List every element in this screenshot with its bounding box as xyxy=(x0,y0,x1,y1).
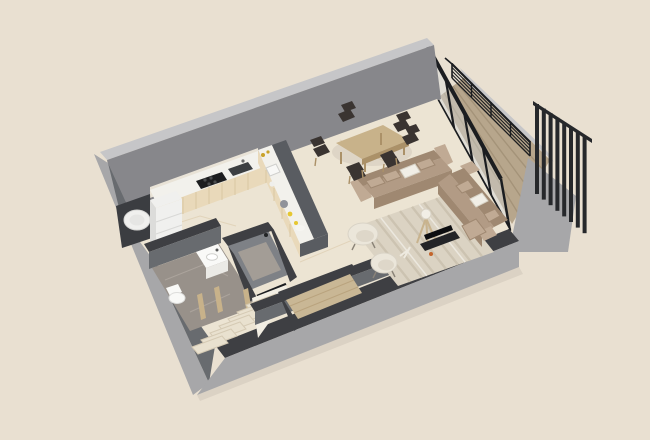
floorplan-render xyxy=(0,0,650,440)
vanity-faucet xyxy=(216,249,219,252)
toilet xyxy=(169,293,185,304)
kettle xyxy=(280,200,288,208)
lemon xyxy=(288,212,293,217)
armchair-seat xyxy=(378,260,394,271)
vanity-basin xyxy=(207,254,218,260)
washer-lid xyxy=(130,215,145,226)
armchair-seat xyxy=(356,230,374,242)
shower-head xyxy=(264,233,268,237)
bowl xyxy=(269,181,274,186)
lamp-shade xyxy=(421,209,431,219)
kitchen-faucet xyxy=(241,159,244,162)
plate xyxy=(295,225,305,231)
lemon xyxy=(294,221,298,225)
brass-bottle xyxy=(266,150,269,153)
brass-bottle xyxy=(261,153,265,157)
decor-accent xyxy=(429,252,433,256)
